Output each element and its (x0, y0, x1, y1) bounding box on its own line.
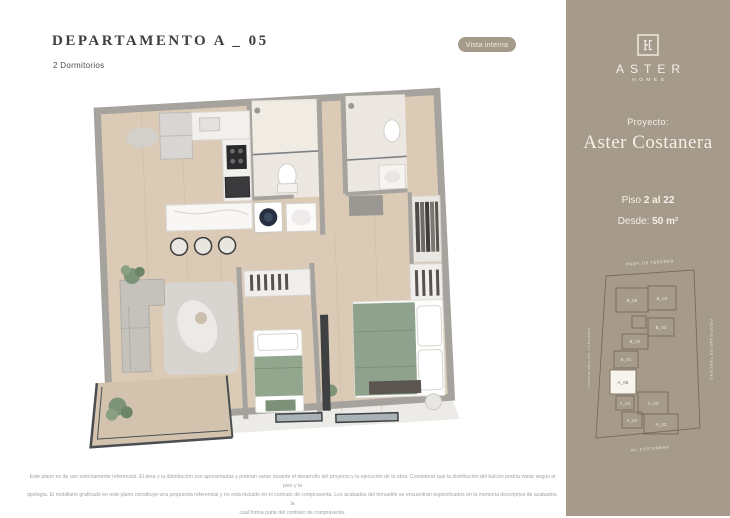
pillow (418, 349, 443, 390)
unit-label: B_05 (627, 298, 638, 303)
unit-label: A_04 (620, 401, 631, 406)
floor-prefix: Piso (622, 195, 641, 206)
project-name: Aster Costanera (566, 132, 730, 154)
unit-label: B_02 (630, 339, 641, 344)
floor-plan-svg (71, 78, 486, 477)
floor-range: Piso 2 al 22 (566, 195, 730, 206)
project-label: Proyecto: (566, 117, 730, 127)
floor-value: 2 al 22 (644, 195, 675, 206)
brand-sub: HOMES (566, 78, 730, 83)
unit-label: A_03 (648, 401, 659, 406)
disclaimer-text: Este plano es de uso estrictamente refer… (25, 473, 560, 518)
aster-logo-icon (637, 34, 659, 56)
disclaimer-line: Este plano es de uso estrictamente refer… (25, 473, 560, 491)
balcony (89, 375, 233, 447)
bedroom-count-label: 2 Dormitorios (53, 61, 104, 70)
area-value: 50 m² (652, 216, 678, 227)
page-title: DEPARTAMENTO A _ 05 (52, 33, 269, 50)
unit-label: B_01 (621, 357, 632, 362)
plate-bottom-label: AV. COSTANERA (631, 444, 670, 452)
disclaimer-line: tipología. El mobiliario graficado en es… (25, 491, 560, 509)
plate-top-label: PROP. DE TERCERO (626, 258, 674, 266)
sidebar: ASTER HOMES Proyecto: Aster Costanera Pi… (566, 0, 730, 516)
kitchen-sink (200, 118, 220, 132)
bar-stools (170, 237, 235, 256)
entry-platform (349, 195, 384, 216)
plate-left-label: PROPIEDAD DE TERCERO (588, 327, 591, 388)
unit-label: A_02 (656, 422, 667, 427)
unit-label: B_03 (656, 325, 667, 330)
window (336, 413, 398, 423)
pillow (417, 305, 442, 346)
unit-label-highlighted: A_05 (618, 380, 629, 385)
disclaimer-line: cual forma parte del contrato de comprav… (25, 509, 560, 518)
area-prefix: Desde: (618, 216, 650, 227)
kitchen-island (166, 203, 253, 231)
floor-plan-render (71, 78, 486, 477)
oven (225, 177, 250, 198)
pouf (425, 393, 441, 409)
unit-label: B_04 (657, 296, 668, 301)
page-root: { "header": { "title": "DEPARTAMENTO A _… (0, 0, 730, 516)
unit-label: A_01 (627, 418, 638, 423)
area-from: Desde: 50 m² (566, 216, 730, 227)
plate-right-label: PROPIEDAD DE TERCERO (709, 319, 714, 380)
brand-name: ASTER (566, 62, 730, 76)
bed-bench (265, 400, 295, 412)
floor-plate-diagram: B_05 B_04 B_03 B_02 B_01 A_05 A_04 A_03 … (588, 250, 718, 464)
bed-throw (369, 380, 421, 394)
window (276, 413, 322, 422)
closet (244, 269, 311, 297)
vista-interna-button[interactable]: Vista interna (458, 37, 516, 52)
cooktop (226, 145, 247, 170)
